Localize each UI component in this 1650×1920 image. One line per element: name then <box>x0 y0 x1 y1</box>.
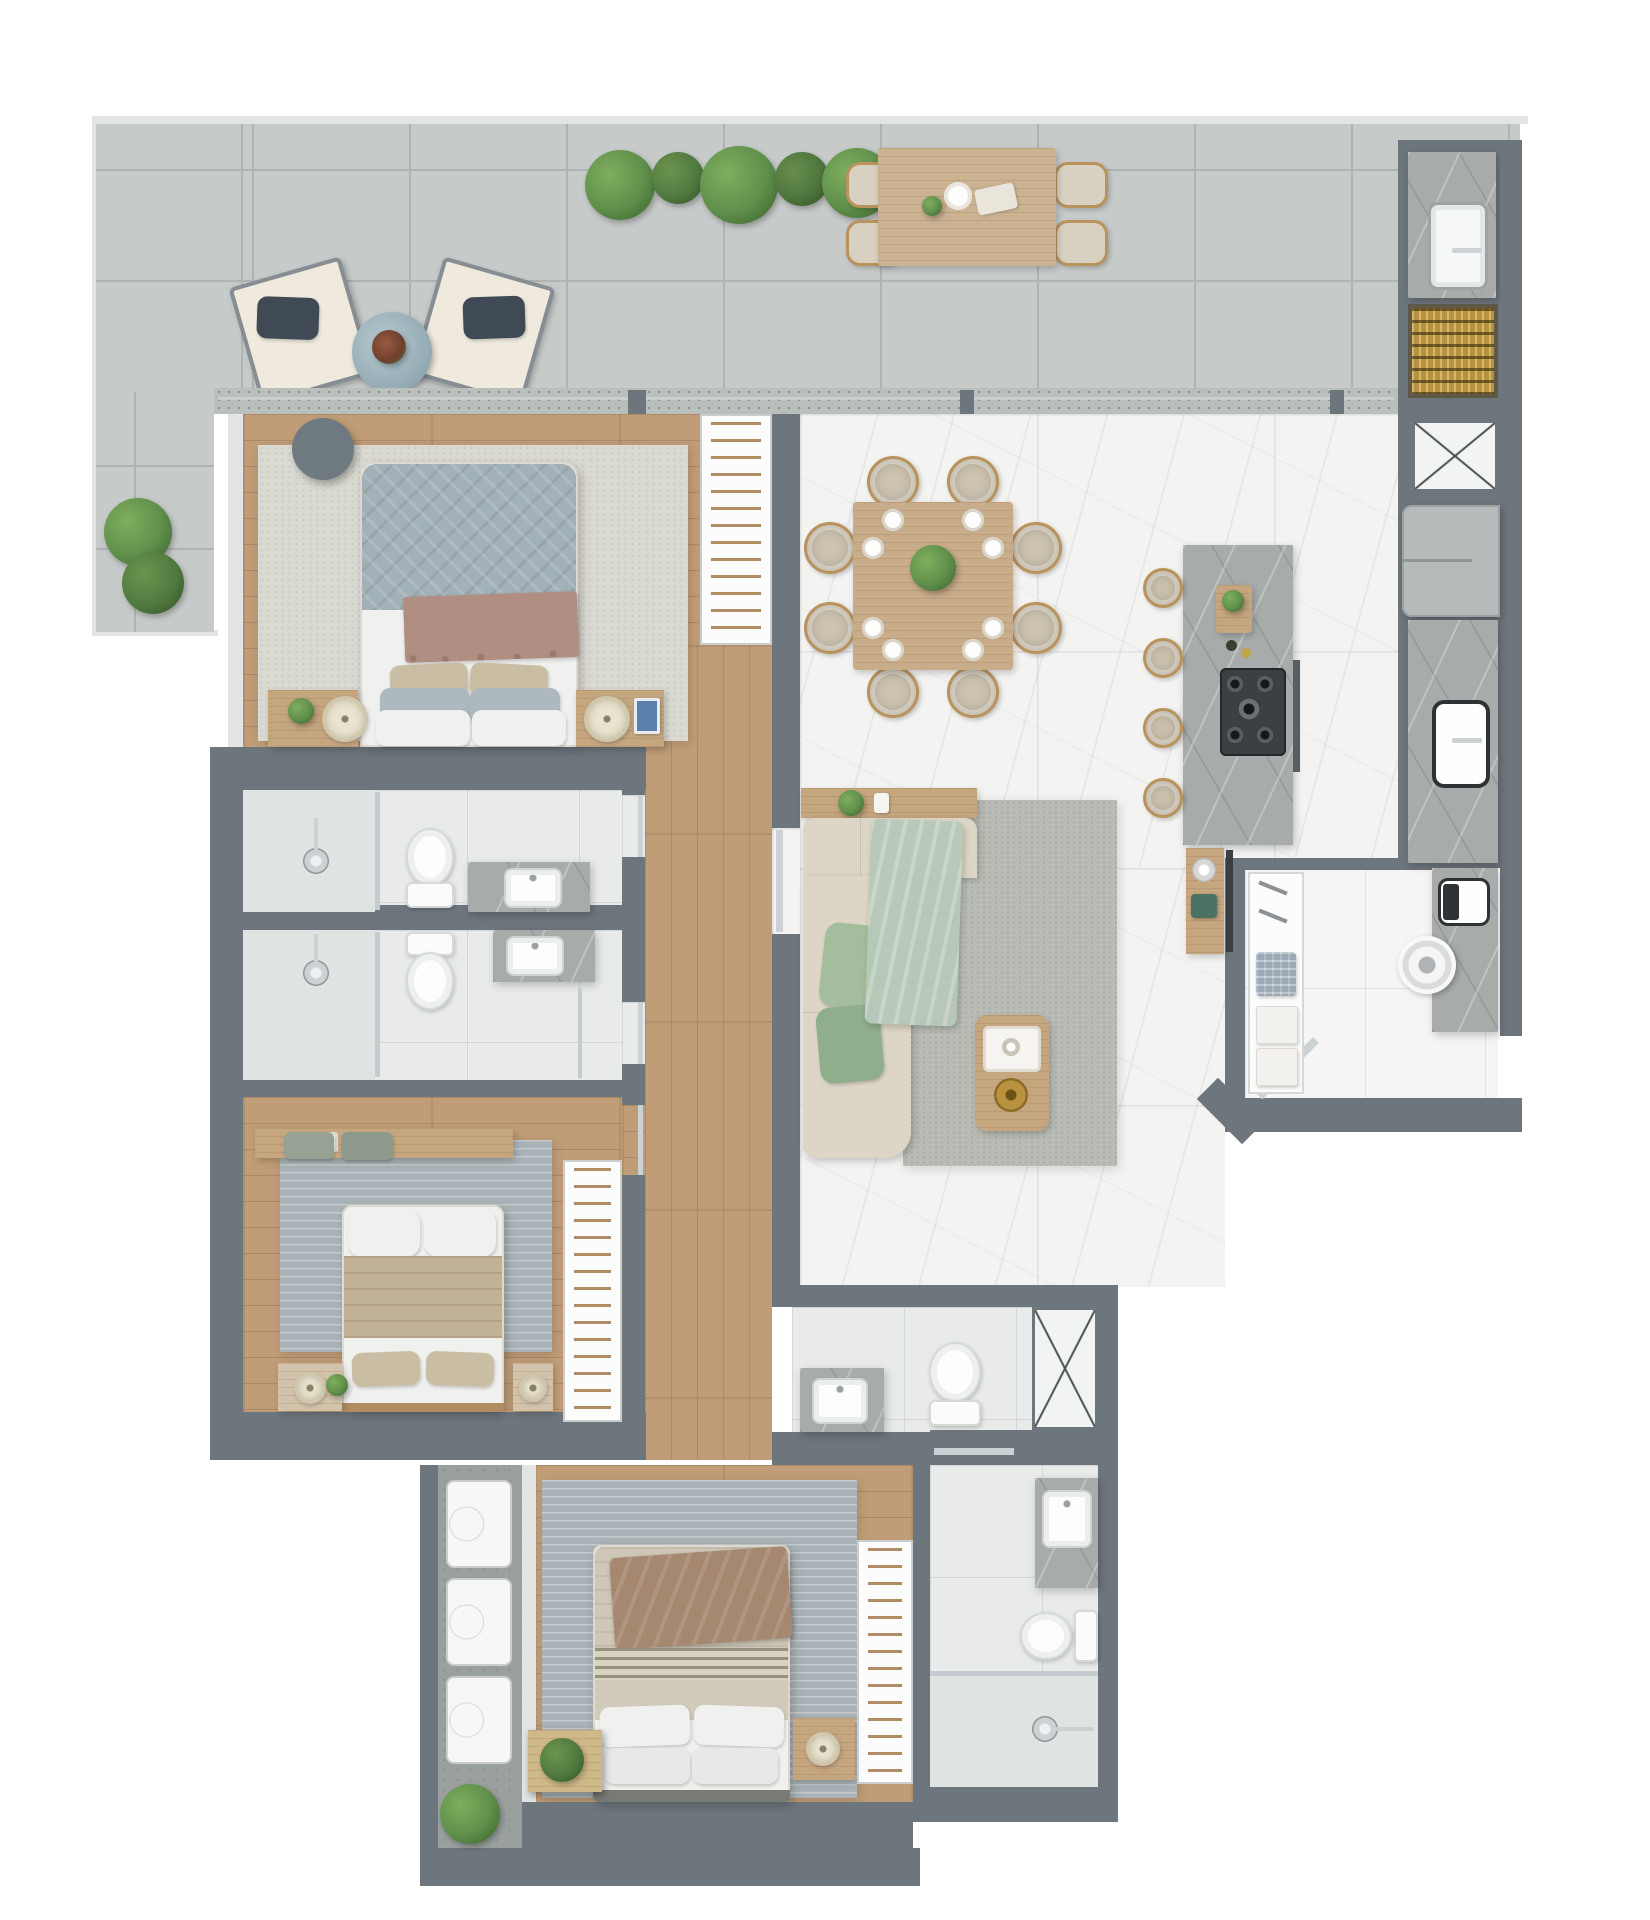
dining-chair <box>1010 602 1062 654</box>
bathroom3-sliding-door <box>934 1448 1014 1455</box>
bathroom1-shower-glass <box>375 792 380 910</box>
living-sliding-door <box>776 830 783 932</box>
bathroom3-sink <box>1042 1490 1092 1548</box>
bottle <box>1241 648 1251 658</box>
outdoor-sink <box>1428 202 1488 290</box>
bedroom2-stool <box>284 1132 334 1159</box>
outdoor-chair <box>1054 220 1108 266</box>
wall-bathroom2-bedroom2 <box>228 1080 622 1097</box>
dining-chair <box>947 456 999 508</box>
planter-plant-4 <box>775 152 829 206</box>
master-lamp-right <box>584 696 630 742</box>
terrace-plant <box>122 552 184 614</box>
island-handle-rail <box>1293 660 1300 772</box>
wall-bottom-outer <box>420 1848 920 1886</box>
wc-toilet-bowl <box>929 1342 981 1402</box>
planter-plant-3 <box>700 146 778 224</box>
ac-unit <box>446 1480 512 1568</box>
master-pillow-white <box>472 710 566 746</box>
outdoor-faucet <box>1452 248 1482 253</box>
coffee-table-gold-bowl <box>994 1078 1028 1112</box>
bedroom2-blanket <box>344 1256 502 1340</box>
master-pillow-white <box>376 710 470 746</box>
folded-towel-blue <box>1256 952 1296 996</box>
bathroom3-shower-glass <box>930 1671 1098 1676</box>
wc-sink <box>812 1378 868 1424</box>
wall-bedroom3-bottom <box>522 1802 913 1848</box>
nightstand-book <box>634 698 660 734</box>
floor-plan-canvas <box>0 0 1650 1920</box>
master-window-wall <box>228 414 243 747</box>
sofa-throw-blanket <box>864 818 963 1026</box>
planter-plant-1 <box>585 150 655 220</box>
barbecue-grill <box>1408 304 1498 398</box>
burner <box>1256 675 1274 693</box>
bathroom2-toilet-bowl <box>406 952 454 1010</box>
bedroom2-headboard <box>342 1403 504 1412</box>
table-plate <box>944 182 972 210</box>
place-setting <box>882 509 904 531</box>
outdoor-dining-table <box>878 148 1056 266</box>
master-round-table <box>292 418 354 480</box>
bedroom2-door <box>638 1105 643 1175</box>
console-vase <box>874 793 889 813</box>
bedroom2-plant <box>326 1374 348 1396</box>
bedroom3-lamp <box>806 1732 840 1766</box>
bedroom2-pillow <box>425 1351 494 1387</box>
dining-chair <box>867 666 919 718</box>
bathroom1-toilet-bowl <box>406 828 454 886</box>
bathroom1-sink <box>504 868 562 908</box>
air-duct-icon <box>1032 1307 1098 1430</box>
dining-chair <box>804 522 856 574</box>
wall-bathroom3-bottom <box>913 1787 1118 1822</box>
bedroom2-stool <box>341 1132 393 1160</box>
bedroom3-wardrobe <box>857 1540 913 1784</box>
shower-head-icon <box>303 848 329 874</box>
kitchen-faucet <box>1452 738 1482 743</box>
sill-mullion <box>1330 390 1344 414</box>
bedroom3-striped-blanket <box>595 1648 788 1682</box>
sofa-console-table <box>801 788 977 818</box>
board-greens <box>1222 590 1244 612</box>
dining-chair <box>867 456 919 508</box>
dining-chair <box>804 602 856 654</box>
table-sprig <box>922 196 942 216</box>
terrace-parapet-top <box>92 116 1528 124</box>
bedroom3-pillow <box>692 1748 778 1784</box>
bathroom2-shower-floor <box>243 930 375 1080</box>
place-setting <box>862 537 884 559</box>
shower-arm <box>314 934 318 962</box>
kitchen-sink <box>1432 700 1490 788</box>
wall-laundry-bottom <box>1225 1098 1522 1132</box>
place-setting <box>962 509 984 531</box>
shower-head-icon <box>1032 1716 1058 1742</box>
folded-towel-white <box>1256 1006 1298 1044</box>
bar-stool <box>1143 568 1183 608</box>
shower-arm <box>314 818 318 850</box>
wall-wc-top <box>772 1285 1118 1307</box>
nightstand-plant <box>288 698 314 724</box>
dining-centerpiece-plant <box>910 545 956 591</box>
ac-unit <box>446 1578 512 1666</box>
burner <box>1256 726 1274 744</box>
washing-machine <box>1398 936 1456 994</box>
bathroom3-shower-floor <box>930 1676 1098 1787</box>
sideboard-decor-green <box>1191 894 1217 918</box>
bathroom2-sink <box>506 936 564 976</box>
place-setting <box>962 639 984 661</box>
lounge-pillow-dark <box>462 295 525 339</box>
burner-center <box>1238 698 1260 720</box>
wall-right-lower <box>1098 1285 1118 1812</box>
bedroom2-duvet-roll <box>424 1209 496 1257</box>
bar-stool <box>1143 638 1183 678</box>
bottle <box>1226 640 1237 651</box>
bedroom3-pillow <box>604 1748 690 1784</box>
master-bed-throw <box>403 591 579 663</box>
air-duct-icon <box>1412 420 1498 492</box>
ac-unit <box>446 1676 512 1764</box>
outdoor-chair <box>1054 162 1108 208</box>
bedroom3-headboard <box>593 1790 790 1802</box>
bar-stool <box>1143 778 1183 818</box>
wall-right-outer <box>1500 140 1522 1036</box>
shower-arm <box>1056 1727 1094 1731</box>
master-lamp-left <box>322 696 368 742</box>
bathroom3-toilet-bowl <box>1020 1612 1072 1660</box>
folded-towel-white <box>1256 1048 1298 1086</box>
place-setting <box>982 617 1004 639</box>
dining-chair <box>947 666 999 718</box>
hallway-floor <box>645 645 772 1460</box>
wall-left-outer <box>210 747 243 1460</box>
console-plant <box>838 790 864 816</box>
place-setting <box>982 537 1004 559</box>
tray-cup <box>1002 1038 1020 1056</box>
place-setting <box>862 617 884 639</box>
sill-mullion <box>960 390 974 414</box>
bathroom1-door <box>638 795 643 857</box>
sliding-door-track <box>218 397 1394 400</box>
laundry-sink-drainer <box>1443 884 1459 920</box>
bathroom2-glass-panel <box>578 988 582 1078</box>
burner <box>1226 726 1244 744</box>
place-setting <box>882 639 904 661</box>
monstera-plant <box>540 1738 584 1782</box>
wall-bedroom3-bathroom3 <box>913 1465 930 1812</box>
wall-master-bathroom1 <box>210 747 646 790</box>
bedroom2-lamp-left <box>294 1372 326 1404</box>
bedroom2-pillow <box>351 1351 420 1387</box>
bathroom2-door <box>638 1002 643 1064</box>
service-plant <box>440 1784 500 1844</box>
bathroom2-shower-glass <box>375 932 380 1077</box>
fridge-door-split <box>1402 559 1472 562</box>
tv-panel <box>1226 850 1233 952</box>
wall-service-left <box>420 1465 438 1886</box>
sliding-door-sill <box>214 388 1398 414</box>
lounge-pillow-dark <box>256 296 319 340</box>
bedroom3-pillow <box>599 1704 690 1747</box>
master-wardrobe <box>700 414 772 645</box>
planter-plant-2 <box>652 152 704 204</box>
side-table-plant <box>372 330 406 364</box>
sideboard-decor-round <box>1192 858 1216 882</box>
bathroom1-toilet-tank <box>406 882 454 908</box>
bathroom3-toilet-tank <box>1074 1610 1098 1662</box>
wall-wc-bottom <box>772 1432 930 1465</box>
bedroom3-pillow <box>693 1704 784 1747</box>
bedroom2-lamp-right <box>519 1374 547 1402</box>
bedroom2-wardrobe <box>563 1160 622 1422</box>
dining-chair <box>1010 522 1062 574</box>
burner <box>1226 675 1244 693</box>
wc-toilet-tank <box>929 1400 981 1426</box>
shower-head-icon <box>303 960 329 986</box>
sill-mullion <box>628 390 646 414</box>
bedroom2-duvet-roll <box>348 1209 420 1257</box>
bar-stool <box>1143 708 1183 748</box>
bedroom3-brown-throw <box>609 1546 793 1650</box>
